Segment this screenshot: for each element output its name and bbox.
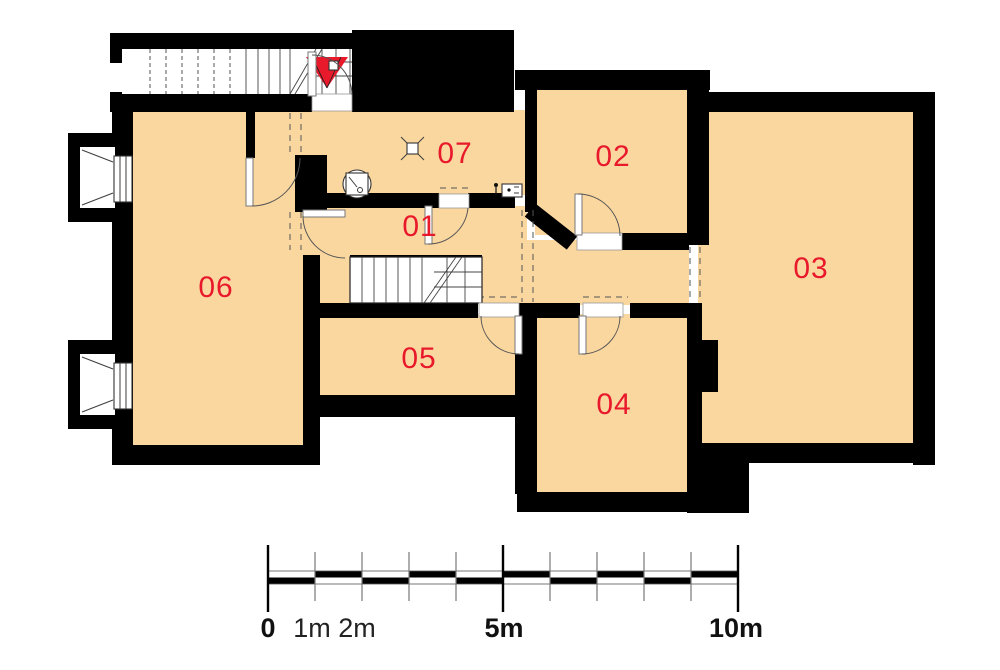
door-leaf — [303, 210, 345, 217]
scale-label-2m: 2m — [338, 613, 376, 643]
scale-label-10m: 10m — [709, 613, 763, 643]
scale-label-1m: 1m — [293, 613, 331, 643]
room-label-05: 05 — [401, 342, 436, 375]
door-leaf — [246, 158, 253, 206]
interior-stairs — [350, 257, 482, 303]
landing-mark — [329, 61, 338, 70]
room-label-03: 03 — [793, 252, 828, 285]
door-leaf — [308, 52, 316, 96]
electric-meter-icon — [502, 184, 522, 197]
door-leaf — [575, 194, 582, 235]
scale-label-5m: 5m — [484, 613, 523, 643]
scale-bar: 0 1m 2m 5m 10m — [260, 545, 763, 643]
room-label-07: 07 — [437, 137, 472, 170]
floor-plan-page: 01 02 03 04 05 06 07 0 1 — [0, 0, 1000, 665]
room-label-01: 01 — [402, 210, 437, 243]
window-icon — [114, 156, 132, 202]
room-label-06: 06 — [198, 271, 233, 304]
room-label-02: 02 — [595, 140, 630, 173]
chimney-block — [700, 340, 718, 392]
scale-label-0: 0 — [260, 613, 275, 643]
door-leaf — [579, 316, 586, 354]
floor-plan-svg: 01 02 03 04 05 06 07 0 1 — [0, 0, 1000, 665]
room-label-04: 04 — [596, 388, 631, 421]
door-leaf — [515, 316, 522, 354]
window-icon — [114, 363, 132, 409]
